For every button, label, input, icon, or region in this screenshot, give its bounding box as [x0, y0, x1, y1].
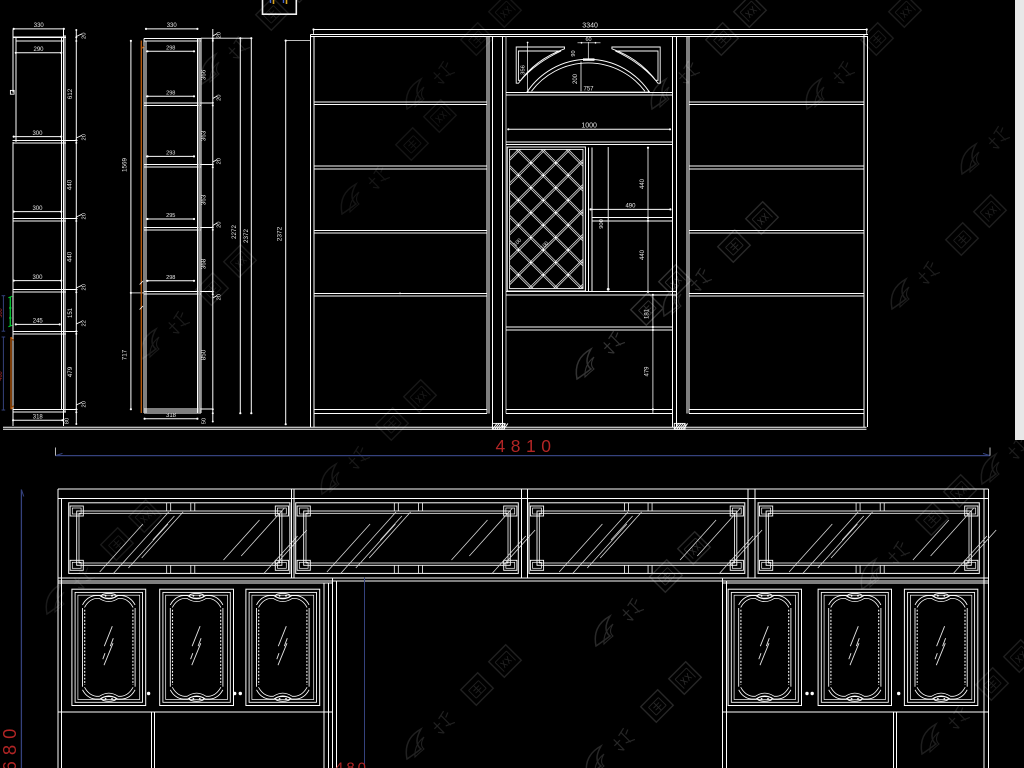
svg-text:2372: 2372	[243, 229, 250, 244]
svg-text:2272: 2272	[231, 225, 238, 240]
svg-text:290: 290	[33, 47, 44, 53]
svg-text:20: 20	[217, 158, 223, 164]
svg-text:440: 440	[640, 178, 646, 189]
svg-text:330: 330	[34, 23, 45, 29]
svg-text:318: 318	[166, 413, 177, 419]
svg-text:20: 20	[217, 221, 223, 227]
svg-text:20: 20	[217, 294, 223, 300]
svg-text:20: 20	[81, 401, 87, 407]
svg-text:900: 900	[599, 219, 605, 229]
svg-text:1000: 1000	[581, 123, 597, 130]
svg-text:20: 20	[81, 213, 87, 219]
svg-text:440: 440	[67, 179, 74, 190]
svg-text:20: 20	[81, 284, 87, 290]
svg-text:440: 440	[67, 251, 74, 262]
svg-text:680: 680	[0, 723, 20, 768]
svg-text:293: 293	[166, 151, 175, 157]
svg-text:100: 100	[540, 241, 551, 252]
svg-text:60: 60	[585, 37, 591, 43]
svg-text:295: 295	[166, 213, 175, 219]
svg-text:717: 717	[122, 349, 129, 360]
svg-text:300: 300	[0, 308, 4, 317]
svg-text:363: 363	[200, 194, 207, 205]
svg-text:850: 850	[200, 349, 207, 360]
svg-text:440: 440	[640, 249, 646, 260]
svg-text:3340: 3340	[582, 23, 598, 30]
svg-text:300: 300	[32, 131, 43, 137]
svg-text:298: 298	[166, 46, 175, 52]
svg-text:20: 20	[217, 94, 223, 100]
svg-text:181: 181	[645, 308, 651, 319]
svg-text:1569: 1569	[122, 158, 129, 173]
svg-text:330: 330	[167, 23, 178, 29]
svg-text:298: 298	[166, 275, 175, 281]
svg-text:245: 245	[33, 319, 44, 325]
svg-text:318: 318	[33, 414, 44, 420]
svg-text:757: 757	[583, 86, 594, 92]
svg-text:200: 200	[573, 73, 579, 84]
svg-text:480: 480	[0, 371, 4, 380]
svg-text:4810: 4810	[496, 436, 557, 456]
svg-text:300: 300	[32, 275, 43, 281]
svg-text:80: 80	[65, 418, 71, 424]
svg-text:20: 20	[217, 32, 223, 38]
svg-text:480: 480	[335, 760, 369, 768]
svg-text:100: 100	[513, 238, 524, 249]
svg-text:90: 90	[571, 50, 577, 56]
svg-text:22: 22	[81, 320, 87, 326]
svg-text:368: 368	[200, 258, 207, 269]
svg-text:490: 490	[625, 204, 636, 210]
svg-text:2372: 2372	[276, 226, 283, 241]
svg-text:479: 479	[67, 366, 74, 377]
svg-text:300: 300	[32, 206, 43, 212]
svg-text:366: 366	[200, 69, 207, 80]
svg-text:151: 151	[68, 307, 74, 318]
svg-text:363: 363	[200, 130, 207, 141]
svg-text:50: 50	[201, 418, 207, 424]
svg-text:356: 356	[521, 65, 527, 75]
svg-text:20: 20	[81, 32, 87, 38]
svg-text:298: 298	[166, 91, 175, 97]
svg-text:612: 612	[67, 88, 74, 99]
svg-text:20: 20	[81, 134, 87, 140]
svg-text:479: 479	[645, 366, 651, 377]
